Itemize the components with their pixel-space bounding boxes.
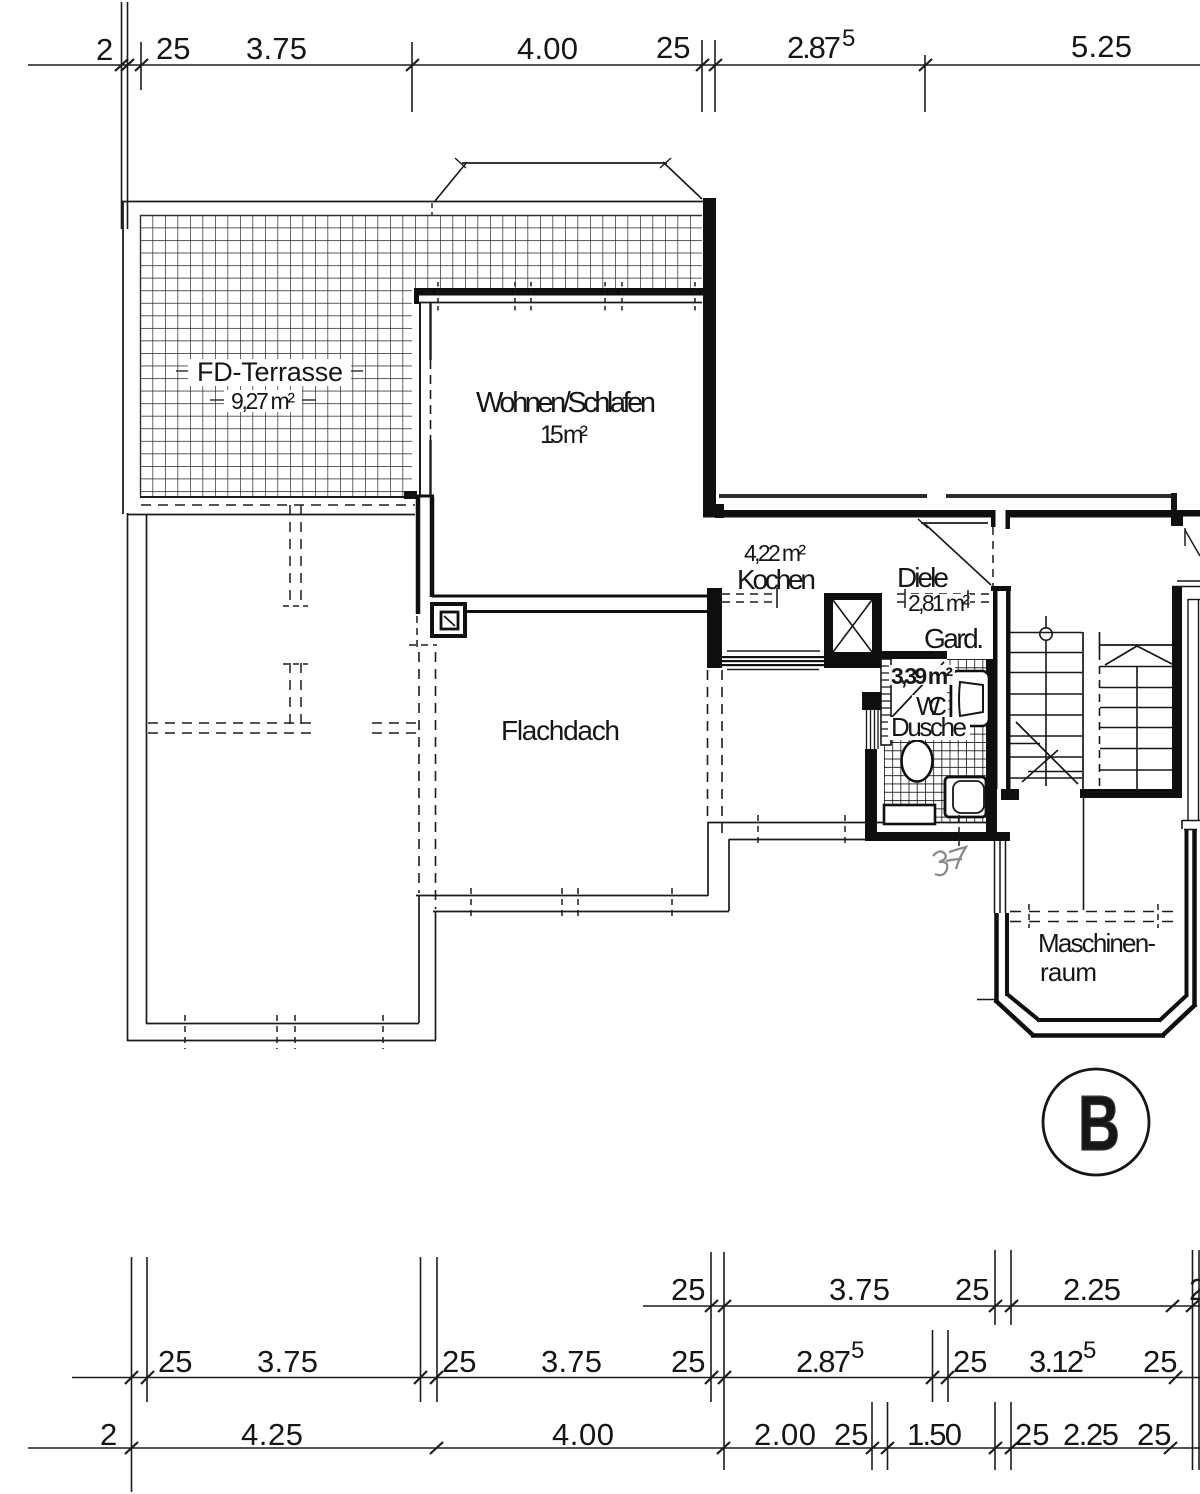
svg-text:Dusche: Dusche <box>891 712 967 742</box>
svg-text:25: 25 <box>953 1344 987 1379</box>
svg-text:25: 25 <box>1015 1417 1049 1452</box>
svg-text:25: 25 <box>156 31 190 66</box>
svg-text:25: 25 <box>442 1344 476 1379</box>
svg-text:25: 25 <box>158 1344 192 1379</box>
svg-text:3.75: 3.75 <box>829 1272 890 1307</box>
svg-text:4.00: 4.00 <box>517 31 578 66</box>
svg-text:2: 2 <box>96 32 113 67</box>
svg-text:1.50: 1.50 <box>907 1417 962 1452</box>
svg-text:2: 2 <box>100 1417 117 1452</box>
svg-text:3,39 m²: 3,39 m² <box>891 663 953 689</box>
svg-text:2.87: 2.87 <box>796 1344 851 1379</box>
svg-text:B: B <box>1078 1079 1120 1167</box>
svg-text:Kochen: Kochen <box>737 564 816 595</box>
svg-text:25: 25 <box>955 1272 989 1307</box>
svg-text:4.00: 4.00 <box>552 1417 614 1452</box>
svg-text:3.75: 3.75 <box>541 1344 602 1379</box>
svg-text:15 m²: 15 m² <box>540 421 588 449</box>
svg-text:Maschinen-: Maschinen- <box>1038 928 1156 958</box>
svg-text:Diele: Diele <box>897 562 949 593</box>
svg-text:2.25: 2.25 <box>1063 1417 1119 1452</box>
svg-text:2.25: 2.25 <box>1063 1272 1121 1307</box>
svg-text:5: 5 <box>1083 1337 1096 1364</box>
svg-text:4.25: 4.25 <box>241 1417 303 1452</box>
svg-text:2: 2 <box>1189 1272 1200 1307</box>
svg-text:25: 25 <box>834 1417 868 1452</box>
svg-text:25: 25 <box>1143 1344 1177 1379</box>
svg-text:5.25: 5.25 <box>1071 29 1132 64</box>
svg-text:3.75: 3.75 <box>246 31 307 66</box>
svg-text:3.12: 3.12 <box>1029 1344 1084 1379</box>
svg-text:2,81 m²: 2,81 m² <box>908 590 970 616</box>
svg-text:25: 25 <box>671 1272 705 1307</box>
svg-text:raum: raum <box>1040 957 1097 987</box>
svg-text:2.00: 2.00 <box>754 1417 816 1452</box>
svg-text:FD-Terrasse: FD-Terrasse <box>197 357 343 387</box>
svg-text:5: 5 <box>851 1337 864 1364</box>
svg-text:Gard.: Gard. <box>924 623 984 654</box>
svg-text:5: 5 <box>842 25 855 52</box>
svg-text:2.87: 2.87 <box>787 30 841 65</box>
svg-text:Wohnen/Schlafen: Wohnen/Schlafen <box>476 387 656 419</box>
svg-text:25: 25 <box>1137 1417 1171 1452</box>
svg-text:4,22 m²: 4,22 m² <box>744 540 806 566</box>
svg-text:9,27 m²: 9,27 m² <box>231 388 295 414</box>
svg-text:25: 25 <box>671 1344 705 1379</box>
svg-text:25: 25 <box>656 30 690 65</box>
svg-text:3.75: 3.75 <box>257 1344 318 1379</box>
svg-text:Flachdach: Flachdach <box>501 715 620 746</box>
